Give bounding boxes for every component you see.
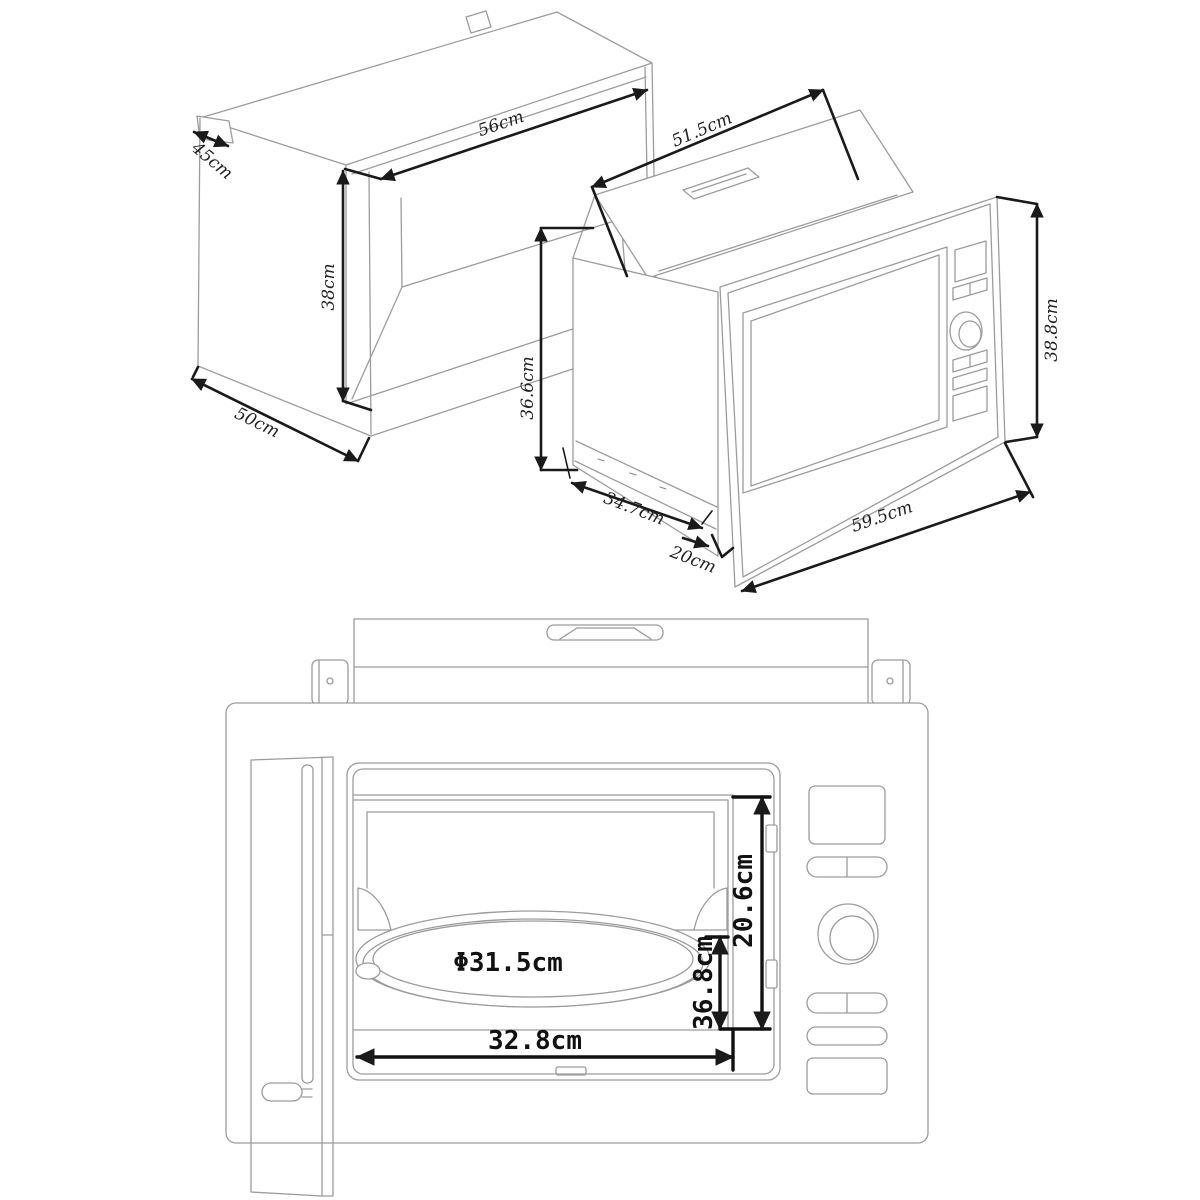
dim-label-inner-height: 36.8cm [689, 936, 719, 1030]
microwave-installation-diagram: 45cm 56cm 38cm 50cm [0, 0, 1200, 1200]
dim-label-niche-depth-top: 45cm [187, 138, 237, 184]
microwave-isometric-drawing: 51.5cm 36.6cm 34.7cm 20cm 59.5cm 38.8cm [518, 90, 1062, 591]
door-handle-hook [262, 1083, 302, 1101]
door-edge [302, 765, 313, 1083]
mounting-tab-left [312, 660, 348, 705]
dim-label-opening-height: 20.6cm [729, 854, 759, 948]
dim-label-niche-height: 38cm [319, 263, 339, 310]
mounting-tab-right [872, 660, 910, 705]
microwave-front-view-drawing: Φ31.5cm 32.8cm 36.8cm 20.6cm [226, 619, 928, 1196]
top-handle [547, 625, 663, 640]
dim-label-body-width: 51.5cm [669, 108, 735, 151]
technical-drawing-page: 45cm 56cm 38cm 50cm [0, 0, 1200, 1200]
dim-label-frame-height: 38.8cm [1042, 298, 1062, 362]
dim-label-turntable-diameter: Φ31.5cm [453, 948, 563, 978]
dim-label-opening-width: 32.8cm [488, 1026, 582, 1056]
dim-label-body-height: 36.6cm [518, 356, 538, 420]
dim-label-niche-depth-bottom: 50cm [231, 404, 282, 443]
